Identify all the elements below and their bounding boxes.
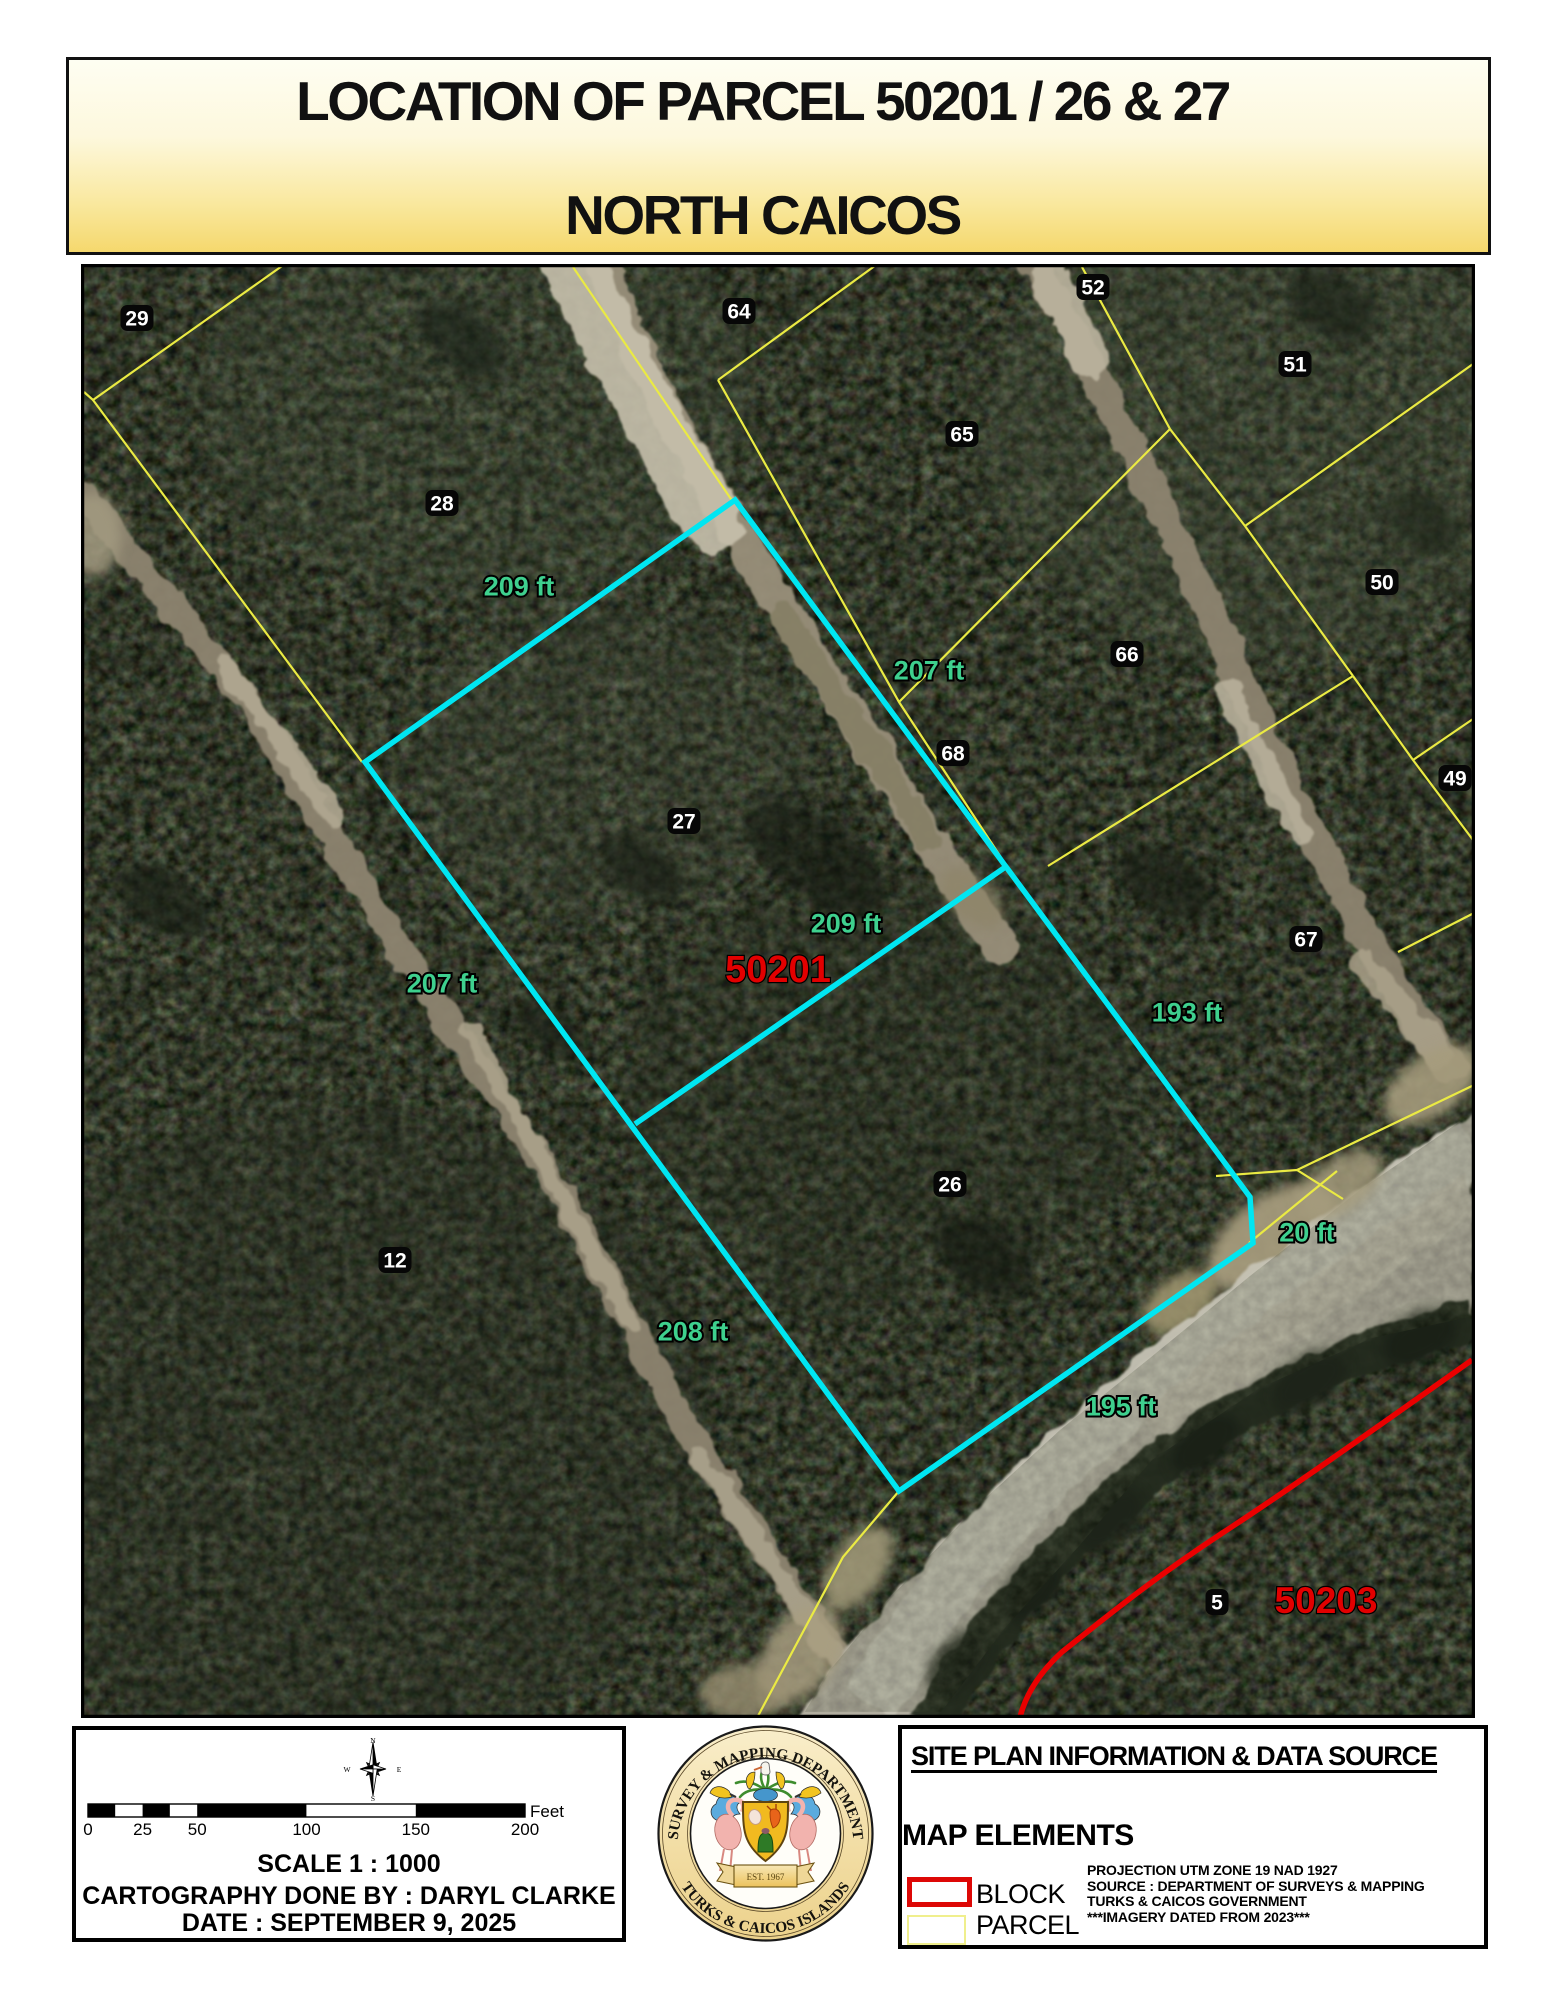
svg-text:193 ft: 193 ft [1152,998,1223,1028]
svg-text:67: 67 [1294,929,1317,952]
svg-text:5: 5 [1211,1592,1223,1615]
svg-text:N: N [370,1736,376,1745]
svg-text:66: 66 [1115,644,1138,667]
svg-text:68: 68 [941,743,965,766]
svg-text:51: 51 [1283,354,1307,377]
svg-text:52: 52 [1081,277,1104,300]
svg-text:E: E [397,1765,402,1774]
svg-text:12: 12 [383,1250,406,1273]
svg-text:50201: 50201 [725,949,831,991]
svg-text:Feet: Feet [530,1802,564,1821]
svg-text:25: 25 [133,1820,152,1839]
svg-text:64: 64 [727,301,751,324]
svg-text:207 ft: 207 ft [894,656,965,686]
svg-text:49: 49 [1443,768,1466,791]
svg-text:195 ft: 195 ft [1086,1392,1157,1422]
svg-text:65: 65 [950,424,974,447]
svg-text:EST. 1967: EST. 1967 [747,1872,785,1882]
svg-text:100: 100 [292,1820,320,1839]
svg-text:50: 50 [1370,572,1393,595]
svg-text:W: W [343,1765,351,1774]
svg-text:27: 27 [672,811,695,834]
svg-text:207 ft: 207 ft [407,969,478,999]
svg-text:0: 0 [83,1820,92,1839]
svg-text:29: 29 [125,308,148,331]
svg-text:200: 200 [511,1820,539,1839]
svg-text:209 ft: 209 ft [484,572,555,602]
svg-text:150: 150 [402,1820,430,1839]
svg-text:50: 50 [188,1820,207,1839]
svg-text:209 ft: 209 ft [811,909,882,939]
svg-text:28: 28 [430,493,454,516]
svg-text:208 ft: 208 ft [658,1317,729,1347]
svg-text:26: 26 [938,1174,961,1197]
svg-text:50203: 50203 [1275,1580,1378,1621]
svg-text:20 ft: 20 ft [1279,1218,1335,1248]
